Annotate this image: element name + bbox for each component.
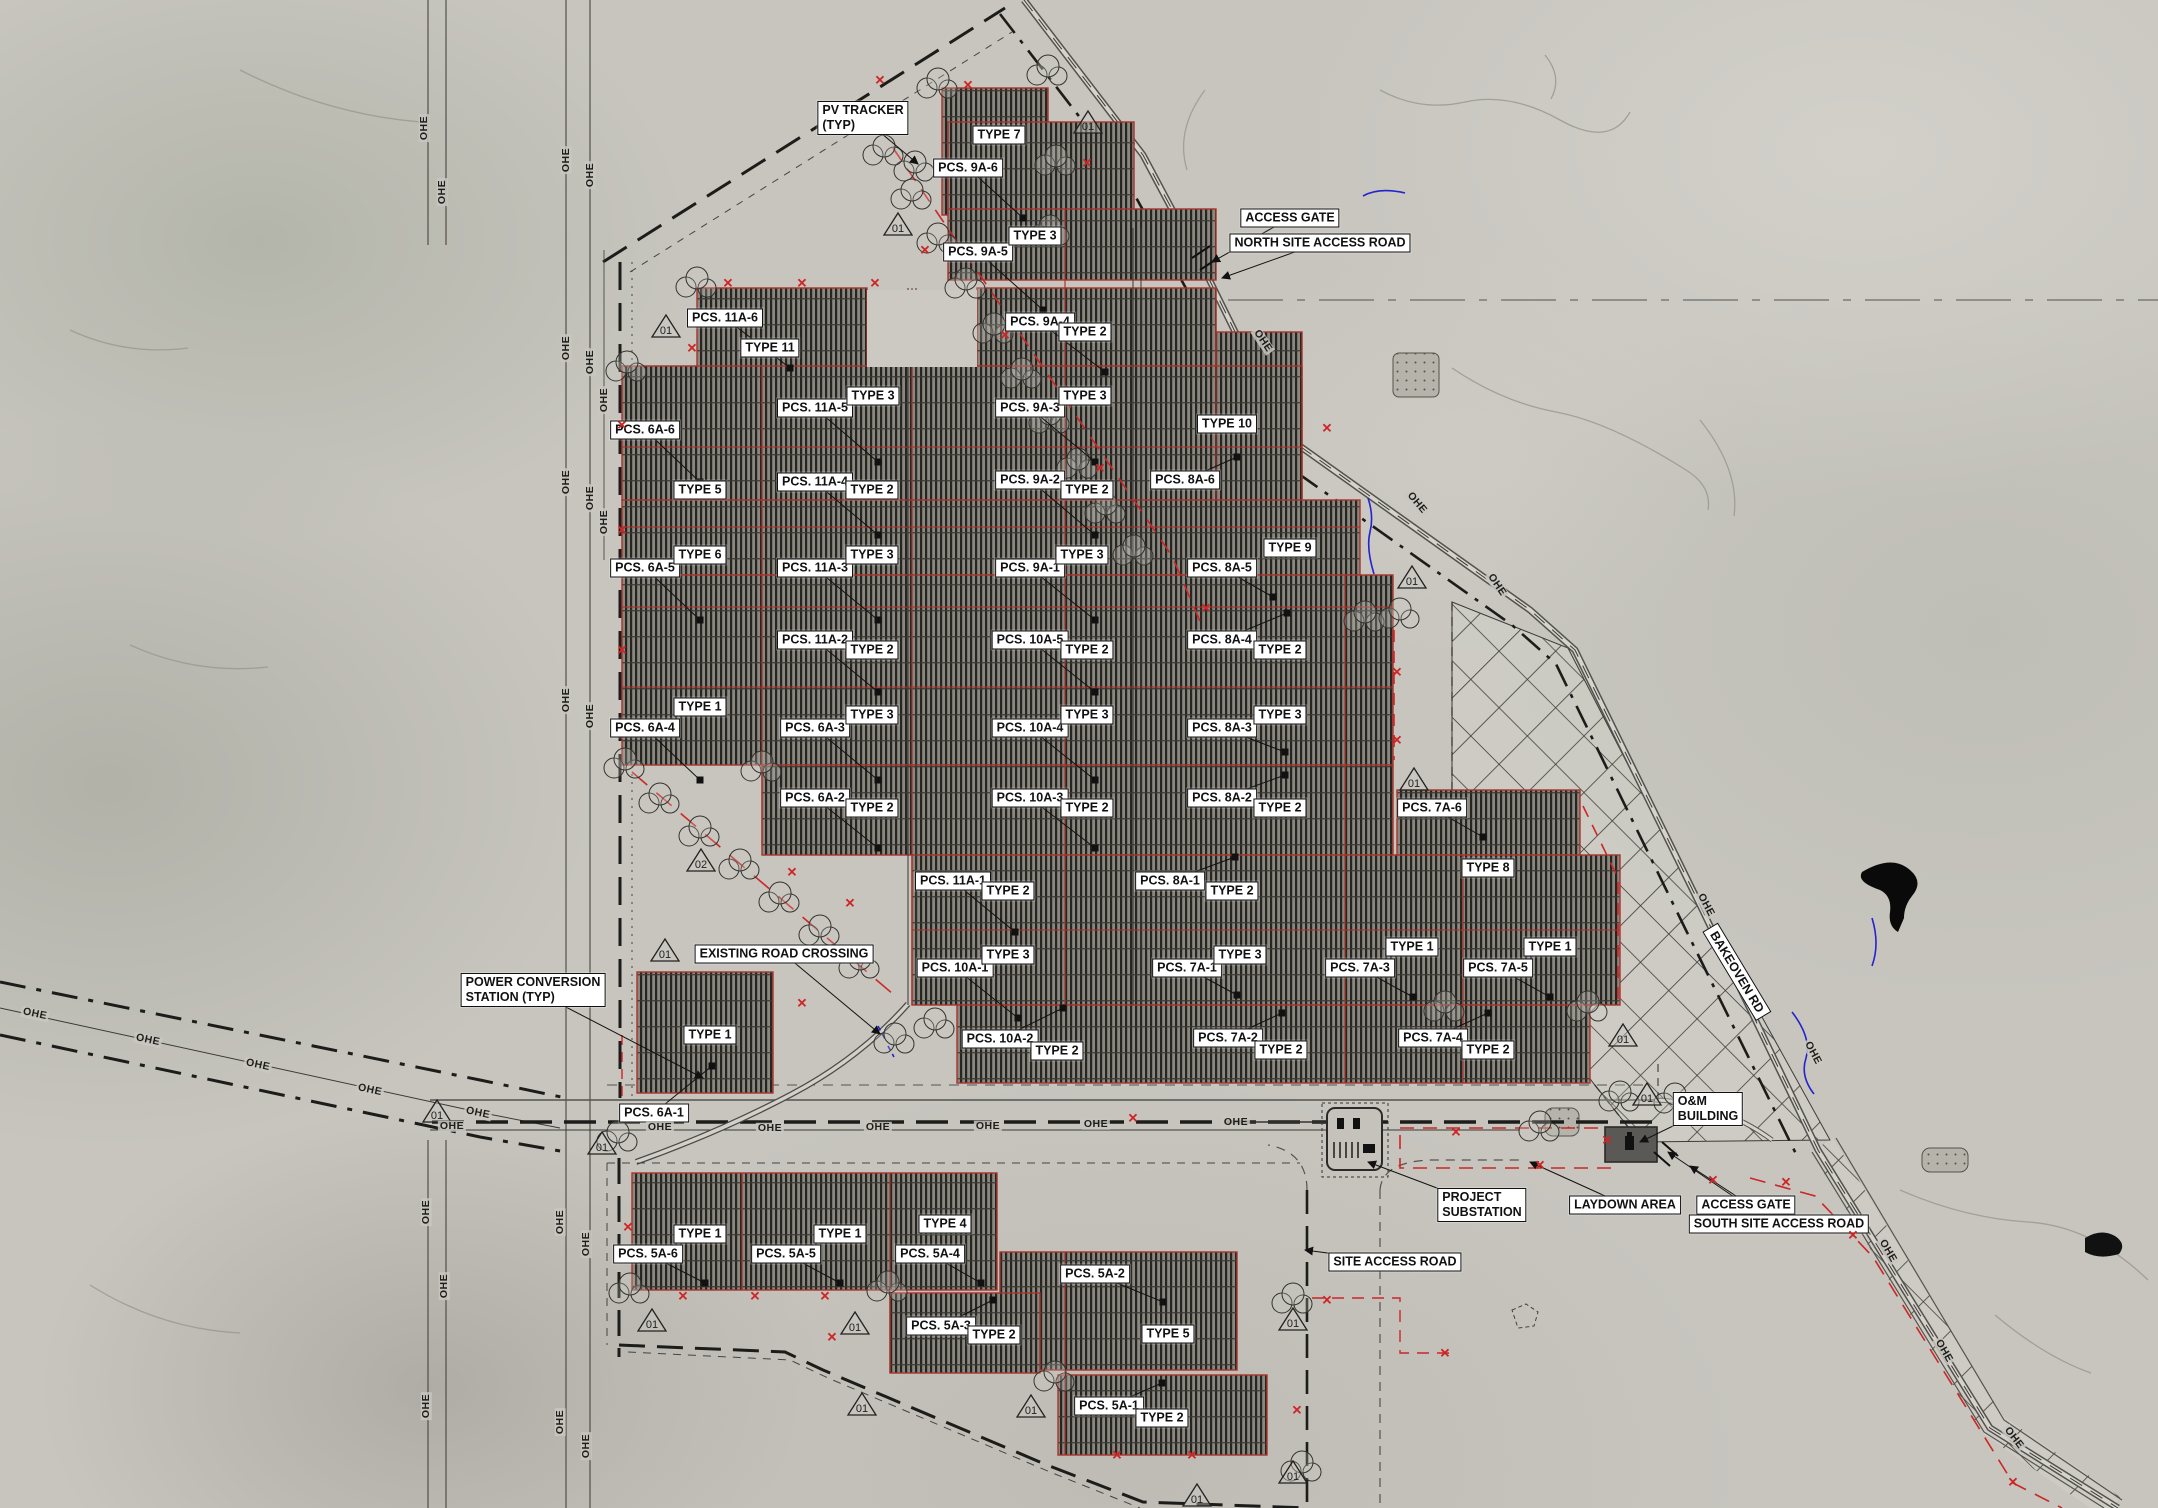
- type-label: TYPE 1: [1523, 938, 1576, 957]
- ohe-line-label: OHE: [1222, 1117, 1250, 1128]
- pcs-label: PCS. 10A-3: [992, 789, 1069, 808]
- fence-x-mark-icon: ✕: [1095, 462, 1106, 475]
- type-label: TYPE 7: [972, 126, 1025, 145]
- fence-x-mark-icon: ✕: [963, 79, 974, 92]
- callout-label: O&M BUILDING: [1673, 1092, 1743, 1126]
- ohe-line-label: OHE: [355, 1082, 385, 1098]
- pcs-label: PCS. 7A-3: [1325, 959, 1395, 978]
- ohe-line-label: OHE: [599, 386, 610, 414]
- type-label: TYPE 2: [1135, 1409, 1188, 1428]
- type-label: TYPE 6: [673, 546, 726, 565]
- pcs-label: PCS. 11A-4: [777, 473, 853, 492]
- fence-x-mark-icon: ✕: [1451, 1126, 1462, 1139]
- fence-x-mark-icon: ✕: [1602, 1134, 1613, 1147]
- fence-x-mark-icon: ✕: [1781, 1176, 1792, 1189]
- fence-x-mark-icon: ✕: [797, 997, 808, 1010]
- fence-x-mark-icon: ✕: [820, 1290, 831, 1303]
- type-label: TYPE 2: [845, 641, 898, 660]
- type-label: TYPE 8: [1461, 859, 1514, 878]
- ohe-line-label: OHE: [1404, 489, 1430, 517]
- fence-x-mark-icon: ✕: [1392, 666, 1403, 679]
- pcs-label: PCS. 9A-6: [933, 159, 1003, 178]
- fence-x-mark-icon: ✕: [1187, 1449, 1198, 1462]
- type-label: TYPE 3: [845, 546, 898, 565]
- fence-x-mark-icon: ✕: [1322, 1294, 1333, 1307]
- type-label: TYPE 1: [673, 1225, 726, 1244]
- ohe-line-label: OHE: [243, 1057, 273, 1073]
- type-label: TYPE 2: [1060, 481, 1113, 500]
- type-label: TYPE 2: [967, 1326, 1020, 1345]
- fence-x-mark-icon: ✕: [1082, 157, 1093, 170]
- ohe-line-label: OHE: [1695, 890, 1718, 920]
- pcs-label: PCS. 6A-1: [619, 1104, 689, 1123]
- callout-label: ACCESS GATE: [1696, 1196, 1795, 1215]
- fence-x-mark-icon: ✕: [1848, 1229, 1859, 1242]
- pcs-label: PCS. 10A-2: [962, 1030, 1039, 1049]
- fence-x-mark-icon: ✕: [1292, 1404, 1303, 1417]
- type-label: TYPE 2: [1060, 641, 1113, 660]
- fence-x-mark-icon: ✕: [723, 277, 734, 290]
- pcs-label: PCS. 11A-5: [777, 399, 853, 418]
- type-label: TYPE 11: [740, 339, 799, 358]
- pcs-label: PCS. 6A-3: [780, 719, 850, 738]
- pcs-label: PCS. 11A-6: [687, 309, 763, 328]
- callout-label: NORTH SITE ACCESS ROAD: [1229, 234, 1410, 253]
- fence-x-mark-icon: ✕: [617, 644, 628, 657]
- callout-label: LAYDOWN AREA: [1569, 1196, 1681, 1215]
- pcs-label: PCS. 11A-2: [777, 631, 853, 650]
- pcs-label: PCS. 7A-2: [1193, 1029, 1263, 1048]
- pcs-label: PCS. 6A-2: [780, 789, 850, 808]
- ohe-line-label: OHE: [561, 146, 572, 174]
- pcs-label: PCS. 7A-4: [1398, 1029, 1468, 1048]
- type-label: TYPE 3: [1213, 946, 1266, 965]
- pcs-label: PCS. 8A-3: [1187, 719, 1257, 738]
- callout-label: POWER CONVERSION STATION (TYP): [461, 973, 606, 1007]
- callout-label: SITE ACCESS ROAD: [1328, 1253, 1461, 1272]
- ohe-line-label: OHE: [439, 1272, 450, 1300]
- fence-x-mark-icon: ✕: [845, 897, 856, 910]
- pcs-label: PCS. 6A-4: [610, 719, 680, 738]
- fence-x-mark-icon: ✕: [1112, 1449, 1123, 1462]
- ohe-line-label: OHE: [561, 334, 572, 362]
- fence-x-mark-icon: ✕: [1322, 422, 1333, 435]
- type-label: TYPE 2: [1254, 1041, 1307, 1060]
- ohe-line-label: OHE: [1932, 1336, 1955, 1366]
- ohe-line-label: OHE: [438, 1121, 466, 1132]
- ohe-line-label: OHE: [756, 1123, 784, 1134]
- ohe-line-label: OHE: [421, 1392, 432, 1420]
- pcs-label: PCS. 5A-1: [1074, 1397, 1144, 1416]
- pcs-label: PCS. 8A-2: [1187, 789, 1257, 808]
- pcs-label: PCS. 10A-4: [992, 719, 1069, 738]
- type-label: TYPE 3: [1060, 706, 1113, 725]
- fence-x-mark-icon: ✕: [1128, 1112, 1139, 1125]
- ohe-line-label: OHE: [581, 1230, 592, 1258]
- type-label: TYPE 10: [1197, 415, 1257, 434]
- fence-x-mark-icon: ✕: [1392, 734, 1403, 747]
- callout-label: ACCESS GATE: [1240, 209, 1339, 228]
- road-name-label: BAKEOVEN RD: [1702, 923, 1771, 1022]
- callout-label: PROJECT SUBSTATION: [1437, 1188, 1526, 1222]
- type-label: TYPE 5: [1141, 1325, 1194, 1344]
- fence-x-mark-icon: ✕: [2008, 1476, 2019, 1489]
- ohe-line-label: OHE: [1485, 570, 1510, 599]
- fence-x-mark-icon: ✕: [920, 244, 931, 257]
- ohe-line-label: OHE: [585, 161, 596, 189]
- ohe-line-label: OHE: [864, 1122, 892, 1133]
- fence-x-mark-icon: ✕: [1201, 602, 1212, 615]
- callout-label: PV TRACKER (TYP): [817, 101, 908, 135]
- ohe-line-label: OHE: [419, 114, 430, 142]
- type-label: TYPE 1: [1385, 938, 1438, 957]
- ohe-line-label: OHE: [585, 484, 596, 512]
- ohe-line-label: OHE: [437, 178, 448, 206]
- labels-layer: PCS. 9A-6PCS. 9A-5PCS. 9A-4PCS. 9A-3PCS.…: [0, 0, 2158, 1508]
- pcs-label: PCS. 6A-5: [610, 559, 680, 578]
- pcs-label: PCS. 9A-5: [943, 243, 1013, 262]
- type-label: TYPE 2: [1030, 1042, 1083, 1061]
- ohe-line-label: OHE: [1251, 326, 1276, 355]
- type-label: TYPE 5: [673, 481, 726, 500]
- type-label: TYPE 1: [813, 1225, 866, 1244]
- ohe-line-label: OHE: [581, 1432, 592, 1460]
- type-label: TYPE 3: [1253, 706, 1306, 725]
- type-label: TYPE 2: [981, 882, 1034, 901]
- ohe-line-label: OHE: [599, 508, 610, 536]
- fence-x-mark-icon: ✕: [750, 1290, 761, 1303]
- ohe-line-label: OHE: [646, 1122, 674, 1133]
- fence-x-mark-icon: ✕: [678, 1290, 689, 1303]
- ohe-line-label: OHE: [561, 686, 572, 714]
- pcs-label: PCS. 8A-6: [1150, 471, 1220, 490]
- type-label: TYPE 3: [981, 946, 1034, 965]
- ohe-line-label: OHE: [463, 1105, 493, 1121]
- ohe-line-label: OHE: [555, 1408, 566, 1436]
- solar-site-plan: 010101010102010101010101010101010101 PCS…: [0, 0, 2158, 1508]
- fence-x-mark-icon: ✕: [1708, 1174, 1719, 1187]
- pcs-label: PCS. 5A-3: [906, 1317, 976, 1336]
- pcs-label: PCS. 5A-5: [751, 1245, 821, 1264]
- type-label: TYPE 2: [1461, 1041, 1514, 1060]
- ohe-line-label: OHE: [555, 1208, 566, 1236]
- pcs-label: PCS. 9A-1: [995, 559, 1065, 578]
- fence-x-mark-icon: ✕: [797, 277, 808, 290]
- type-label: TYPE 2: [1205, 882, 1258, 901]
- type-label: TYPE 3: [845, 706, 898, 725]
- type-label: TYPE 2: [1060, 799, 1113, 818]
- pcs-label: PCS. 5A-4: [895, 1245, 965, 1264]
- pcs-label: PCS. 7A-1: [1152, 959, 1222, 978]
- ohe-line-label: OHE: [421, 1198, 432, 1226]
- pcs-label: PCS. 10A-5: [992, 631, 1069, 650]
- ohe-line-label: OHE: [1082, 1119, 1110, 1130]
- fence-x-mark-icon: ✕: [1440, 1347, 1451, 1360]
- callout-label: SOUTH SITE ACCESS ROAD: [1689, 1215, 1869, 1234]
- pcs-label: PCS. 7A-5: [1463, 959, 1533, 978]
- type-label: TYPE 2: [1058, 323, 1111, 342]
- type-label: TYPE 2: [1253, 641, 1306, 660]
- ohe-line-label: OHE: [561, 468, 572, 496]
- pcs-label: PCS. 9A-3: [995, 399, 1065, 418]
- type-label: TYPE 1: [673, 698, 726, 717]
- type-label: TYPE 3: [1055, 546, 1108, 565]
- fence-x-mark-icon: ✕: [875, 74, 886, 87]
- fence-x-mark-icon: ✕: [870, 277, 881, 290]
- pcs-label: PCS. 9A-2: [995, 471, 1065, 490]
- pcs-label: PCS. 11A-1: [915, 872, 991, 891]
- fence-x-mark-icon: ✕: [687, 342, 698, 355]
- pcs-label: PCS. 11A-3: [777, 559, 853, 578]
- type-label: TYPE 3: [1008, 227, 1061, 246]
- type-label: TYPE 2: [845, 481, 898, 500]
- callout-label: EXISTING ROAD CROSSING: [695, 945, 874, 964]
- ohe-line-label: OHE: [133, 1032, 163, 1048]
- fence-x-mark-icon: ✕: [617, 524, 628, 537]
- type-label: TYPE 4: [918, 1215, 971, 1234]
- type-label: TYPE 2: [1253, 799, 1306, 818]
- ohe-line-label: OHE: [585, 702, 596, 730]
- pcs-label: PCS. 8A-1: [1135, 872, 1205, 891]
- ohe-line-label: OHE: [20, 1006, 50, 1022]
- fence-x-mark-icon: ✕: [617, 419, 628, 432]
- type-label: TYPE 3: [1058, 387, 1111, 406]
- ohe-line-label: OHE: [2001, 1424, 2027, 1453]
- type-label: TYPE 2: [845, 799, 898, 818]
- fence-x-mark-icon: ✕: [787, 866, 798, 879]
- fence-x-mark-icon: ✕: [1000, 329, 1011, 342]
- ohe-line-label: OHE: [1876, 1236, 1899, 1266]
- fence-x-mark-icon: ✕: [623, 1221, 634, 1234]
- fence-x-mark-icon: ✕: [827, 1331, 838, 1344]
- pcs-label: PCS. 8A-4: [1187, 631, 1257, 650]
- ohe-line-label: OHE: [1802, 1038, 1825, 1068]
- type-label: TYPE 1: [683, 1026, 736, 1045]
- pcs-label: PCS. 8A-5: [1187, 559, 1257, 578]
- type-label: TYPE 3: [846, 387, 899, 406]
- ohe-line-label: OHE: [585, 348, 596, 376]
- fence-x-mark-icon: ✕: [1535, 1159, 1546, 1172]
- pcs-label: PCS. 7A-6: [1397, 799, 1467, 818]
- pcs-label: PCS. 5A-2: [1060, 1265, 1130, 1284]
- ohe-line-label: OHE: [974, 1121, 1002, 1132]
- type-label: TYPE 9: [1263, 539, 1316, 558]
- pcs-label: PCS. 5A-6: [613, 1245, 683, 1264]
